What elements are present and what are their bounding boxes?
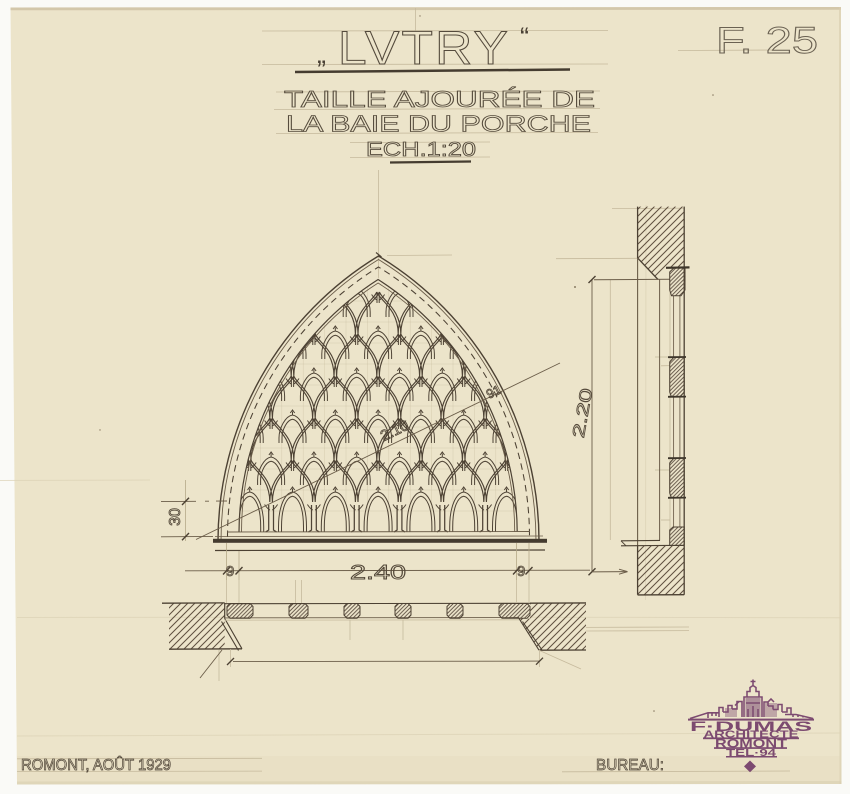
- svg-text:LA BAIE DU PORCHE: LA BAIE DU PORCHE: [286, 111, 591, 137]
- svg-text:„: „: [317, 39, 326, 69]
- svg-text:LVTRY: LVTRY: [338, 21, 510, 74]
- svg-text:9: 9: [517, 563, 525, 580]
- svg-text:9: 9: [226, 563, 234, 580]
- svg-text:BUREAU:: BUREAU:: [596, 757, 664, 774]
- svg-text:ECH.1:20: ECH.1:20: [366, 139, 476, 161]
- svg-text:30: 30: [167, 508, 184, 526]
- svg-text:TEL·94: TEL·94: [726, 748, 777, 759]
- svg-text:2.40: 2.40: [350, 562, 406, 584]
- svg-text:F. 25: F. 25: [716, 20, 818, 61]
- svg-text:ROMONT, AOÛT 1929: ROMONT, AOÛT 1929: [21, 755, 171, 774]
- svg-text:TAILLE AJOURÉE DE: TAILLE AJOURÉE DE: [284, 86, 595, 112]
- svg-text:“: “: [520, 22, 529, 52]
